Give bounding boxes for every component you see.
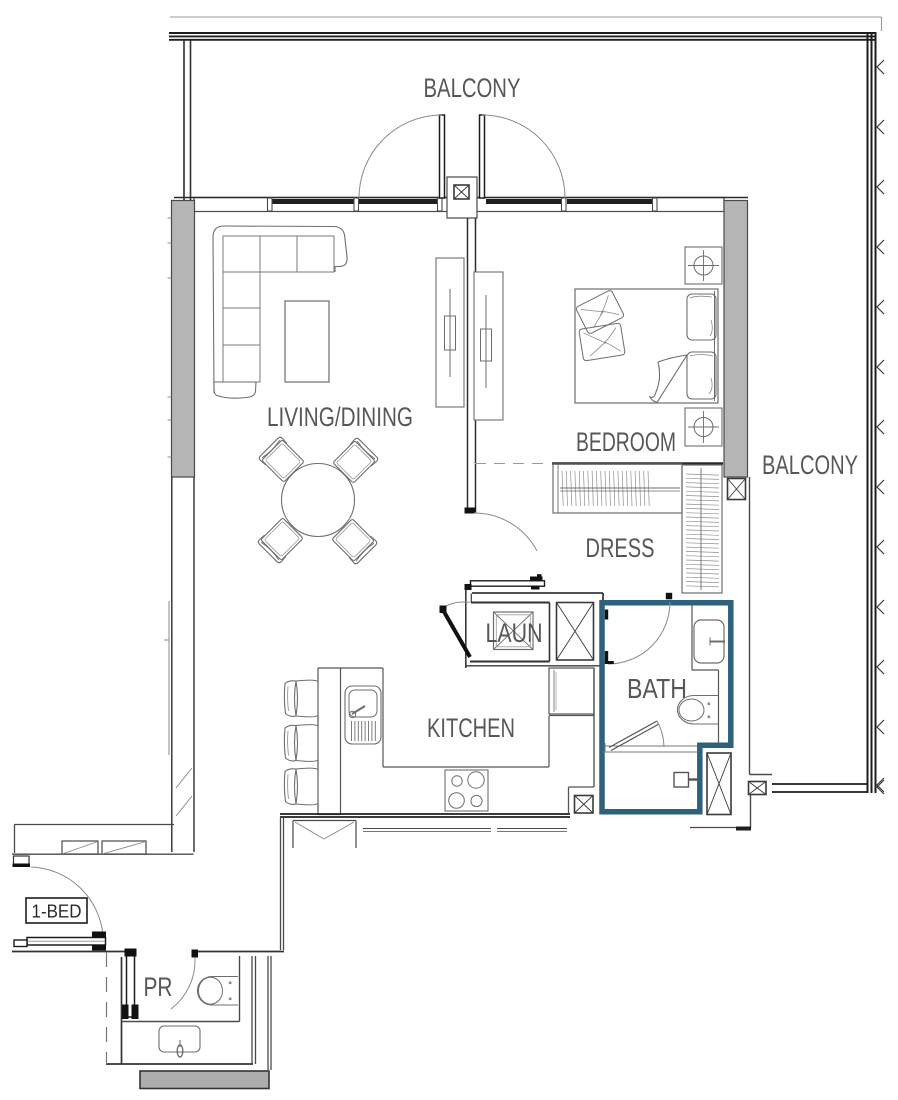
svg-text:BALCONY: BALCONY (762, 450, 858, 480)
svg-text:BATH: BATH (627, 673, 687, 704)
svg-text:1-BED: 1-BED (32, 901, 82, 922)
svg-text:KITCHEN: KITCHEN (427, 713, 515, 743)
svg-text:BEDROOM: BEDROOM (576, 427, 676, 457)
svg-text:LIVING/DINING: LIVING/DINING (267, 402, 413, 432)
svg-text:LAUN: LAUN (486, 618, 543, 648)
svg-text:BALCONY: BALCONY (424, 73, 521, 103)
svg-text:PR: PR (144, 972, 173, 1002)
svg-text:DRESS: DRESS (586, 533, 655, 563)
